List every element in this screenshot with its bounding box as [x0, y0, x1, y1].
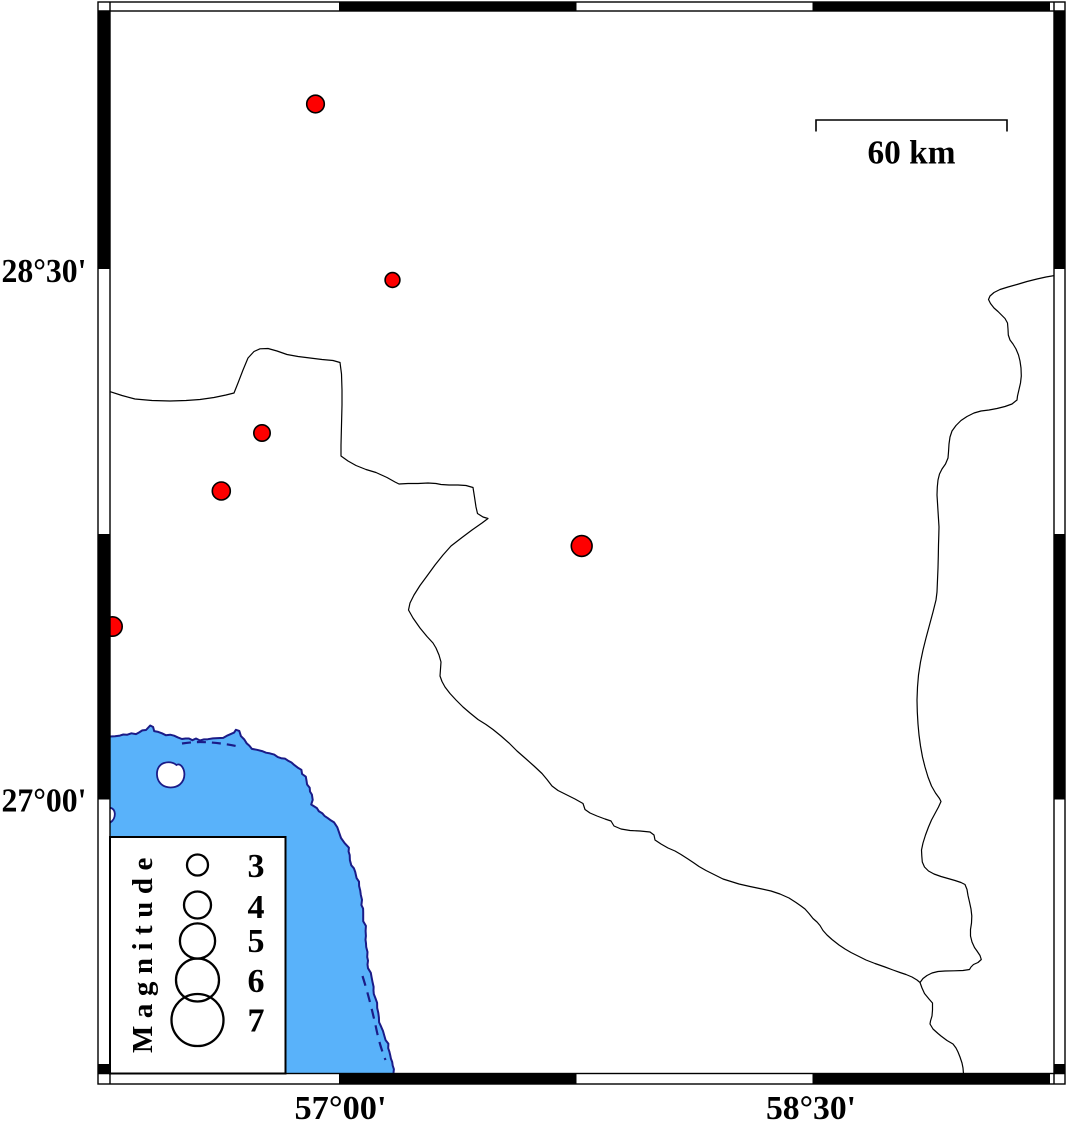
- svg-text:27°00': 27°00': [2, 783, 87, 820]
- svg-text:5: 5: [248, 923, 265, 960]
- svg-text:Magnitude: Magnitude: [127, 850, 159, 1053]
- svg-text:57°00': 57°00': [295, 1090, 387, 1122]
- svg-text:7: 7: [248, 1003, 265, 1040]
- svg-text:3: 3: [248, 848, 265, 885]
- svg-text:6: 6: [248, 963, 265, 1000]
- svg-text:28°30': 28°30': [2, 253, 87, 290]
- svg-text:4: 4: [248, 889, 265, 926]
- svg-text:58°30': 58°30': [766, 1090, 856, 1122]
- svg-text:60 km: 60 km: [868, 135, 956, 172]
